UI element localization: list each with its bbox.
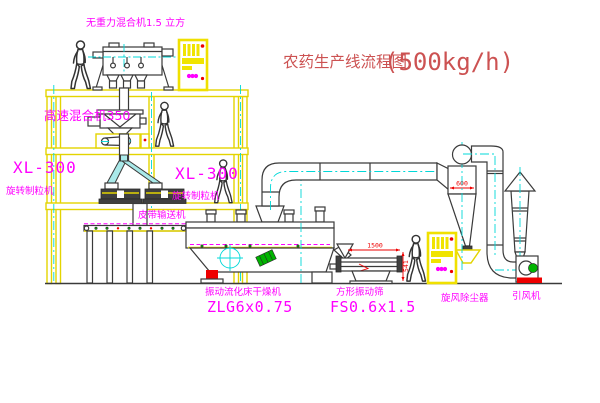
label-gravity-mixer: 无重力混合机1.5 立方 [86,16,185,29]
vibrating-screen: 1500 541 [330,242,410,284]
exhaust-duct [262,163,452,210]
worker-figure-ground [407,235,426,281]
worker-figure-second-floor [156,102,174,146]
worker-figure-top-floor [71,41,90,89]
label-high-speed-mixer: 高速混合机350 [44,108,130,123]
label-granulator-right-name: 旋转制粒机 [172,190,220,202]
process-flow-diagram: 600 1500 [0,0,600,403]
diagram-title-capacity: (500kg/h) [384,48,514,76]
label-dryer-model: ZLG6x0.75 [207,298,293,316]
diagram-canvas: 600 1500 [0,0,600,403]
label-granulator-right-model: XL-300 [175,164,239,183]
label-granulator-left-name: 旋转制粒机 [6,185,54,197]
label-dryer-name: 振动流化床干燥机 [205,286,282,298]
label-fan: 引风机 [512,290,541,302]
label-granulator-left-model: XL-300 [13,158,77,177]
belt-conveyor [84,224,186,283]
gravity-free-mixer [88,43,179,112]
label-cyclone: 旋风除尘器 [441,292,489,304]
induced-draft-fan [516,256,542,283]
granulator-left [99,183,142,204]
label-belt-conveyor: 皮带输送机 [138,209,186,221]
label-screen-model: FS0.6x1.5 [330,298,416,316]
control-cabinet-top [179,40,207,90]
screen-length-dimension: 1500 [367,242,383,250]
control-cabinet-bottom [428,233,456,283]
label-screen-name: 方形振动筛 [336,286,384,298]
